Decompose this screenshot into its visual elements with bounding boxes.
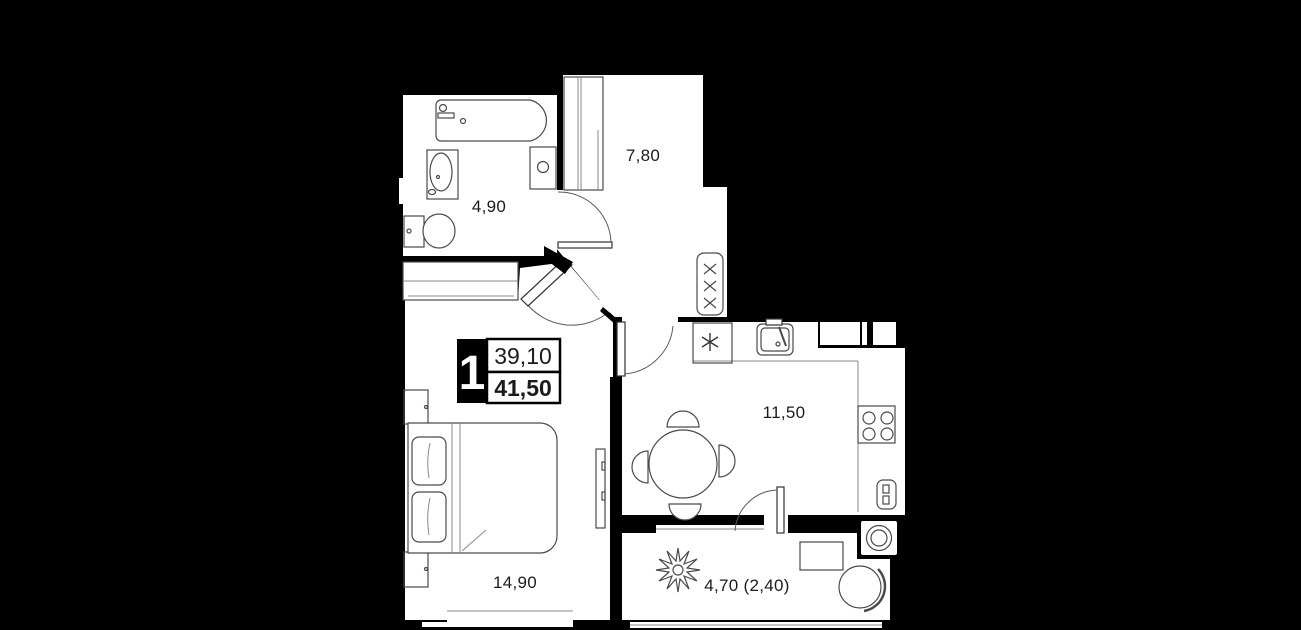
unit-info-badge: 1 39,10 41,50: [457, 339, 560, 403]
wall-niche: [406, 164, 423, 174]
living-area-value: 39,10: [494, 343, 552, 369]
bathtub: [436, 100, 546, 141]
floor-plan: 1 39,10 41,50 4,90 7,80 11,50 14,90 4,70…: [0, 0, 1301, 630]
total-area-value: 41,50: [494, 375, 552, 401]
bedroom-window: [447, 606, 573, 622]
vent-shaft: [873, 322, 896, 345]
wall-niche: [406, 138, 425, 161]
bedroom-area-label: 14,90: [493, 573, 537, 592]
door-frame-line: [609, 317, 613, 377]
kitchen-door-leaf: [617, 322, 625, 376]
unit-number: 1: [459, 347, 486, 400]
bathroom-doorway: [553, 190, 563, 248]
balcony-door-leaf: [777, 487, 784, 533]
balcony-area-label: 4,70 (2,40): [704, 576, 790, 595]
kitchen-area-label: 11,50: [763, 403, 806, 422]
vent-shaft: [862, 322, 867, 345]
bathroom-area-label: 4,90: [472, 197, 506, 216]
balcony-chair: [839, 566, 881, 608]
wall-niche: [399, 178, 424, 204]
bathroom-door-leaf: [558, 242, 612, 248]
floor-plan-canvas: 1 39,10 41,50 4,90 7,80 11,50 14,90 4,70…: [0, 0, 1301, 630]
toilet-bowl: [423, 214, 455, 248]
hallway-area-label: 7,80: [626, 146, 660, 165]
balcony-table: [800, 542, 843, 570]
kitchen-faucet: [766, 319, 782, 325]
facade-glazing: [422, 622, 573, 627]
dining-table: [649, 430, 717, 498]
vent-shaft: [820, 322, 860, 345]
